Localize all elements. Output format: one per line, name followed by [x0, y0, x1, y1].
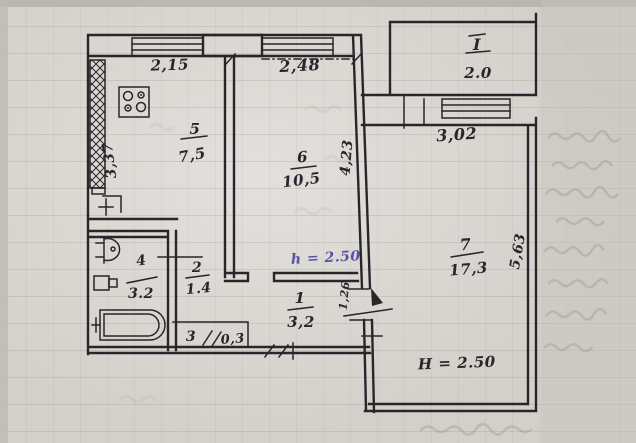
room7-window-icon [404, 95, 510, 128]
dim-room7-width: 3,02 [436, 124, 478, 146]
floor-plan-drawing: 2,15 2,48 I 2.0 3,02 5 7,5 3,37 6 10,5 4… [0, 0, 636, 443]
room7-number: 7 [459, 235, 472, 255]
toilet-icon [94, 276, 117, 290]
dim-kitchen-width: 2,15 [149, 55, 189, 74]
room6-area: 10,5 [281, 169, 321, 192]
room5-area: 7,5 [177, 144, 207, 167]
room7-area: 17,3 [449, 258, 489, 279]
room1-area: 3,2 [287, 313, 315, 331]
wall-pier [203, 35, 262, 56]
sink-icon [96, 237, 120, 263]
room6-height-note: h = 2.50 [291, 248, 362, 268]
room2-area: 1.4 [185, 280, 212, 298]
room3-area: 0,3 [220, 331, 245, 348]
closet-dimension-ticks [203, 331, 221, 346]
stove-icon [119, 87, 149, 117]
room7-height-note: H = 2.50 [417, 353, 496, 374]
dim-room7-depth: 5,63 [507, 232, 529, 270]
room5-number: 5 [190, 120, 201, 138]
room7-door-jambs [344, 289, 392, 336]
dim-hall-passage: 1,26 [337, 281, 353, 311]
room3-number: 3 [186, 329, 196, 345]
balcony-area: 2.0 [463, 64, 492, 82]
room6-number: 6 [296, 148, 309, 167]
room4-number: 4 [135, 252, 147, 269]
door-swing-mark [371, 288, 383, 306]
dim-room6-width: 2,48 [278, 55, 321, 76]
bathtub-icon [92, 310, 165, 340]
room4-area: 3.2 [128, 286, 154, 302]
balcony-door-icon [99, 196, 121, 215]
dim-room6-depth: 4,23 [337, 139, 356, 176]
dim-kitchen-depth: 3,37 [100, 142, 120, 180]
scanned-floor-plan-page: 2,15 2,48 I 2.0 3,02 5 7,5 3,37 6 10,5 4… [0, 0, 636, 443]
room1-number: 1 [295, 289, 306, 307]
balcony-number: I [472, 35, 481, 54]
kitchen-window-icon [132, 38, 203, 56]
entry-threshold-ticks [265, 343, 293, 359]
room2-number: 2 [191, 260, 202, 276]
